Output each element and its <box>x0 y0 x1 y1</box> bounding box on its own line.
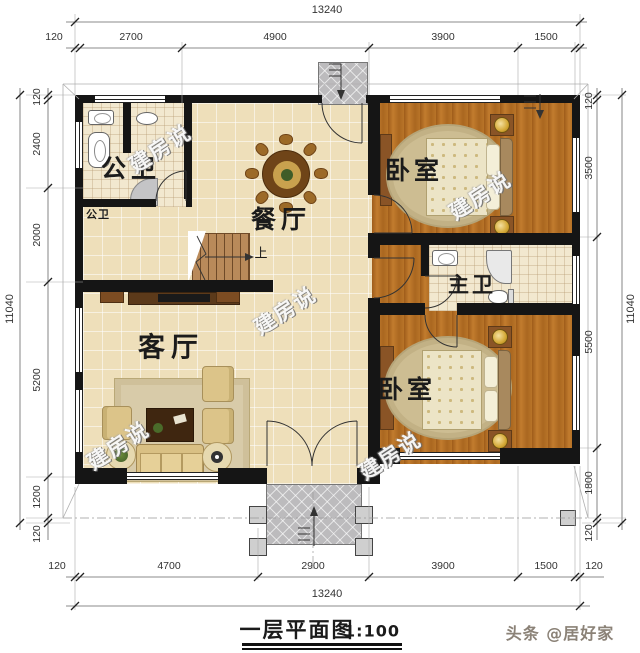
plan-scale: 1:100 <box>344 622 400 641</box>
table-paper <box>173 414 187 425</box>
bathroom-sink <box>136 112 158 125</box>
window-right-bedroom-bottom <box>572 356 580 430</box>
dim-left-seg-4: 1200 <box>31 485 43 508</box>
dim-left-seg-3: 5200 <box>31 368 43 391</box>
window-left-living-1 <box>75 308 83 372</box>
bathroom-sink <box>88 110 114 125</box>
table-plant <box>153 423 163 433</box>
room-label-master-bath: 主卫 <box>448 269 496 299</box>
window-left-bath <box>75 122 83 168</box>
pillow <box>484 390 498 422</box>
dim-bottom-seg-3: 3900 <box>431 560 454 572</box>
wall-master-bath-left <box>421 245 429 276</box>
armchair <box>202 366 234 402</box>
wall-bedroom-top-bottom <box>368 233 580 245</box>
front-porch <box>266 484 362 545</box>
porch-column <box>249 506 267 524</box>
headboard <box>498 350 511 430</box>
dining-table <box>262 150 310 198</box>
dim-top-total: 13240 <box>312 4 343 16</box>
wall-bedroom-bottom-top <box>368 303 425 315</box>
window-top-bedroom <box>390 95 500 103</box>
dim-right-seg-4: 120 <box>583 524 595 542</box>
terrace-post <box>560 510 576 526</box>
dim-bottom-seg-2: 2900 <box>301 560 324 572</box>
master-sink <box>432 250 458 266</box>
dim-bottom-total: 13240 <box>312 588 343 600</box>
dim-right-total: 11040 <box>625 294 637 324</box>
tv <box>158 294 210 302</box>
back-porch <box>318 62 368 105</box>
window-right-bedroom-top <box>572 138 580 212</box>
wall-bath-partition <box>123 103 131 153</box>
stairs-up-label: 上 <box>254 243 267 262</box>
window-top-bath <box>95 95 165 103</box>
dining-chair <box>314 168 328 179</box>
sink-basin <box>94 113 111 124</box>
pillow <box>484 356 498 388</box>
credit-watermark: 头条 @居好家 <box>506 620 615 644</box>
wall-bath-bottom <box>186 199 192 207</box>
porch-column <box>355 538 373 556</box>
window-left-living-2 <box>75 390 83 452</box>
porch-column <box>249 538 267 556</box>
wall-bedroom-bottom-top <box>457 303 580 315</box>
porch-column <box>355 506 373 524</box>
dim-top-seg-1: 2700 <box>119 31 142 43</box>
table-bowl-dot <box>215 455 219 459</box>
dim-top-seg-2: 4900 <box>263 31 286 43</box>
sink-basin <box>438 253 455 265</box>
wall-exterior-bottom <box>218 468 267 484</box>
dining-chair <box>245 168 259 179</box>
dim-left-seg-1: 2400 <box>31 132 43 155</box>
armchair <box>202 408 234 444</box>
window-right-master-bath <box>572 256 580 304</box>
room-label-living: 客厅 <box>138 326 204 365</box>
dim-left-seg-5: 120 <box>31 525 43 543</box>
dim-right-seg-0: 120 <box>583 92 595 110</box>
dining-chair <box>279 134 293 145</box>
room-label-bedroom-bottom: 卧室 <box>378 370 436 406</box>
dim-bottom-seg-5: 120 <box>585 560 603 572</box>
title-underline-thin <box>242 648 402 650</box>
dim-left-seg-2: 2000 <box>31 223 43 246</box>
dim-top-seg-3: 3900 <box>431 31 454 43</box>
wall-exterior-bottom-bedroom <box>500 448 580 464</box>
wall-divider <box>368 103 380 195</box>
lamp <box>492 329 508 345</box>
window-bottom-living <box>127 472 218 480</box>
wall-living-top <box>83 280 273 292</box>
dim-left-seg-0: 120 <box>31 88 43 106</box>
dim-bottom-seg-4: 1500 <box>534 560 557 572</box>
dim-bottom-seg-0: 120 <box>48 560 66 572</box>
title-underline-thick <box>242 643 402 646</box>
dim-left-total: 11040 <box>4 294 16 324</box>
wall-divider <box>368 245 380 258</box>
dim-right-seg-2: 5500 <box>583 330 595 353</box>
dim-top-seg-0: 120 <box>45 31 63 43</box>
room-label-public-bath-small: 公卫 <box>86 206 110 222</box>
plan-title: 一层平面图 <box>240 614 355 644</box>
lamp <box>492 433 508 449</box>
floor-plan: 公卫 公卫 餐厅 客厅 卧室 主卫 卧室 上 13240 120 2700 49… <box>0 0 640 653</box>
wall-bath-right <box>184 103 192 199</box>
dim-right-seg-3: 1800 <box>583 471 595 494</box>
dim-right-seg-1: 3500 <box>583 156 595 179</box>
dining-centerpiece <box>281 169 293 181</box>
lamp <box>494 117 510 133</box>
room-label-dining: 餐厅 <box>251 200 311 236</box>
dim-bottom-seg-1: 4700 <box>157 560 180 572</box>
room-label-bedroom-top: 卧室 <box>385 151 443 187</box>
dim-top-seg-4: 1500 <box>534 31 557 43</box>
